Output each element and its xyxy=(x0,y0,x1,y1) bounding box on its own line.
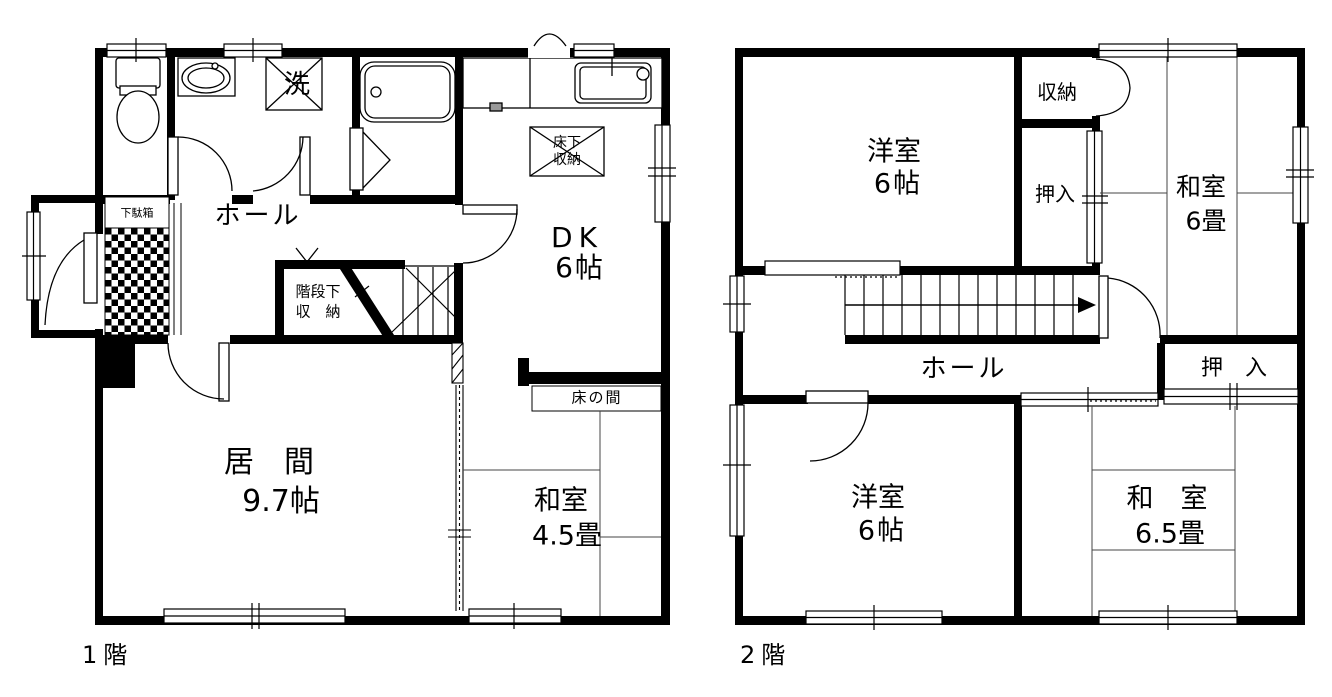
room-label-understair-1: 階段下 xyxy=(295,285,340,300)
room-label-tokonoma: 床の間 xyxy=(571,391,622,406)
stair-direction-arrow xyxy=(1078,297,1096,313)
room-label-laundry: 洗 xyxy=(284,72,310,98)
room-label-understair-2: 収 納 xyxy=(295,305,340,320)
room-label-hall-1f: ホール xyxy=(214,203,301,229)
room-label-dk-1: DK xyxy=(551,224,603,252)
kitchen-counter xyxy=(463,57,662,111)
room-label-shoe-cabinet: 下駄箱 xyxy=(121,208,154,219)
room-label-washitsu6-2: 6畳 xyxy=(1186,209,1227,234)
room-label-oshiire-upper: 押入 xyxy=(1035,184,1075,204)
toilet-bowl xyxy=(117,91,159,143)
floor1-caption: 1階 xyxy=(82,643,133,667)
floor2-caption: 2階 xyxy=(740,643,791,667)
room-label-dk-2: 6帖 xyxy=(555,254,605,282)
f1-stair-diagonal-wall xyxy=(344,266,390,338)
back-door-swing xyxy=(534,34,566,46)
entrance-door-swing xyxy=(45,240,84,325)
toilet-tank xyxy=(116,58,160,88)
room-label-washitsu45-1: 和室 xyxy=(534,488,588,515)
room-label-living-2: 9.7帖 xyxy=(242,487,320,517)
room-label-closet: 収納 xyxy=(1037,82,1077,102)
room-label-yoshitsu-bottom-1: 洋室 xyxy=(851,485,905,512)
room-label-underfloor-storage-2: 収納 xyxy=(553,153,581,167)
floor-plan-drawing xyxy=(0,0,1332,697)
room-label-washitsu65-2: 6.5畳 xyxy=(1135,521,1205,548)
room-label-yoshitsu-top-1: 洋室 xyxy=(867,139,921,166)
stair-handrail xyxy=(765,261,900,277)
oshiire-upper-sliding xyxy=(1082,131,1108,263)
floor-plan-canvas: 洗 床下 収納 ホール DK 6帖 階段下 収 納 居 間 9.7帖 床の間 和… xyxy=(0,0,1332,697)
room-label-washitsu65-1: 和 室 xyxy=(1127,486,1208,513)
room-label-washitsu45-2: 4.5畳 xyxy=(532,523,602,550)
room-label-underfloor-storage-1: 床下 xyxy=(553,136,581,150)
room-label-washitsu6-1: 和室 xyxy=(1176,175,1226,200)
entrance-door-leaf xyxy=(84,233,97,303)
f2-walls xyxy=(735,48,1305,625)
oshiire-lower-sliding xyxy=(1164,383,1298,410)
room-label-oshiire-lower: 押 入 xyxy=(1201,358,1267,380)
washitsu65-sliding xyxy=(1021,387,1158,412)
room-label-yoshitsu-top-2: 6帖 xyxy=(874,171,922,198)
bath-folding-door xyxy=(350,128,390,190)
room-label-living-1: 居 間 xyxy=(224,448,314,478)
room-label-yoshitsu-bottom-2: 6帖 xyxy=(858,518,906,545)
understair-folddoor xyxy=(296,248,318,262)
room-label-hall-2f: ホール xyxy=(920,356,1007,382)
